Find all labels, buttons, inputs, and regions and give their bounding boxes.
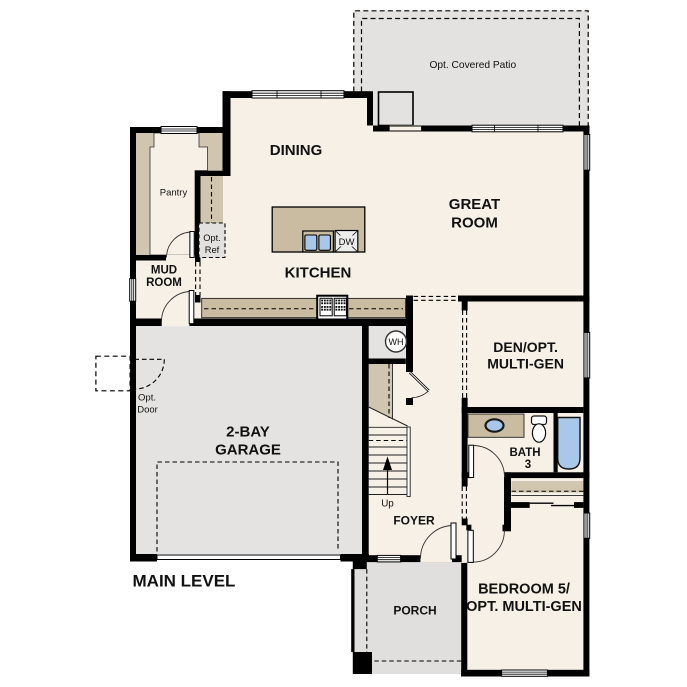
svg-text:WH: WH [389,337,404,347]
svg-text:Pantry: Pantry [160,188,188,199]
svg-text:Door: Door [137,405,158,416]
svg-text:Opt.: Opt. [203,233,221,243]
svg-text:Up: Up [381,499,394,510]
svg-text:2-BAY: 2-BAY [226,424,270,441]
svg-text:PORCH: PORCH [393,604,436,618]
svg-text:Opt. Covered Patio: Opt. Covered Patio [429,60,516,71]
svg-text:ROOM: ROOM [146,277,182,289]
svg-text:Ref: Ref [205,245,220,255]
svg-text:BATH: BATH [509,447,540,459]
svg-text:MULTI-GEN: MULTI-GEN [487,356,564,372]
svg-text:DINING: DINING [270,142,323,159]
svg-text:GREAT: GREAT [449,196,500,213]
svg-text:ROOM: ROOM [451,215,498,232]
svg-text:DW: DW [339,237,355,248]
svg-text:MUD: MUD [151,265,177,277]
svg-text:3: 3 [525,459,531,471]
svg-text:FOYER: FOYER [393,514,435,528]
svg-text:KITCHEN: KITCHEN [285,265,352,282]
svg-text:GARAGE: GARAGE [215,442,281,459]
svg-text:Opt.: Opt. [138,393,156,404]
svg-text:MAIN LEVEL: MAIN LEVEL [133,572,236,591]
svg-text:DEN/OPT.: DEN/OPT. [493,339,558,355]
svg-text:BEDROOM 5/: BEDROOM 5/ [478,582,570,598]
svg-text:OPT. MULTI-GEN: OPT. MULTI-GEN [466,599,582,615]
